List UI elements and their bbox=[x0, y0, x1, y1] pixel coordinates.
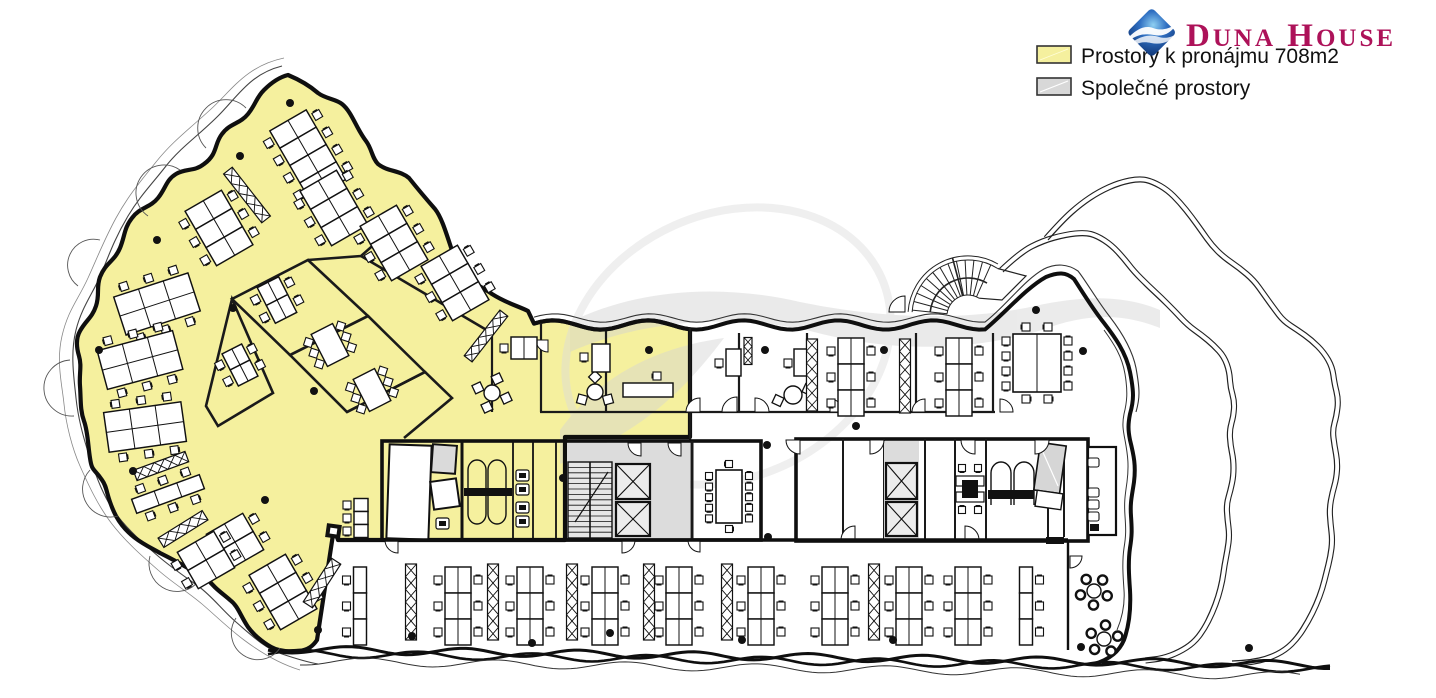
svg-text:Společné prostory: Společné prostory bbox=[1081, 77, 1251, 100]
